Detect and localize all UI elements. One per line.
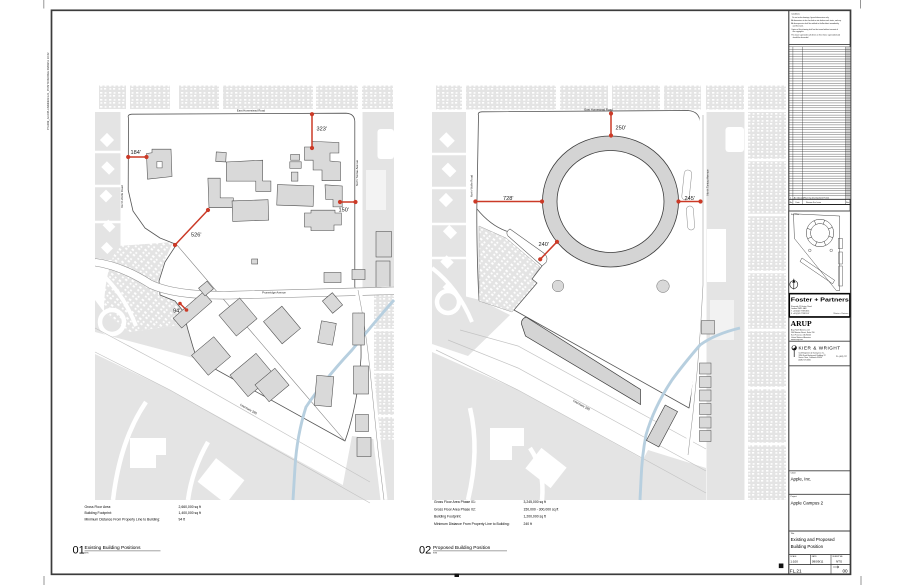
- svg-text:00: 00: [843, 569, 849, 574]
- svg-text:SCALE: SCALE: [790, 555, 797, 558]
- svg-text:Proposed Building Position: Proposed Building Position: [433, 545, 491, 551]
- svg-text:250': 250': [616, 126, 626, 132]
- svg-text:No.: No.: [790, 202, 793, 204]
- svg-text:North Tantau Avenue: North Tantau Avenue: [355, 160, 359, 186]
- svg-text:Client: Client: [791, 472, 797, 475]
- svg-text:P:\1099_AC2\PLANNING\FL21_POSI: P:\1099_AC2\PLANNING\FL21_POSITION.DWG 0…: [46, 52, 50, 130]
- svg-text:the copyrights.: the copyrights.: [793, 30, 805, 33]
- svg-text:should be discarded.: should be discarded.: [793, 36, 810, 39]
- svg-text:NTS: NTS: [433, 552, 438, 554]
- svg-text:www.arup.com: www.arup.com: [791, 339, 803, 341]
- svg-text:Do not scale drawings, figured: Do not scale drawings, figured dimension…: [792, 16, 829, 19]
- svg-text:North Wolfe Road: North Wolfe Road: [120, 185, 124, 208]
- svg-text:240': 240': [539, 242, 549, 248]
- svg-text:184': 184': [131, 150, 141, 156]
- svg-text:East Homestead Road: East Homestead Road: [237, 108, 266, 112]
- svg-text:245': 245': [685, 196, 695, 202]
- svg-text:Conditions: Conditions: [791, 13, 800, 16]
- svg-text:East Homestead Road: East Homestead Road: [584, 108, 613, 112]
- svg-text:Minimum Distance From Property: Minimum Distance From Property Line to B…: [85, 518, 161, 522]
- svg-text:2,660,000 sq ft: 2,660,000 sq ft: [179, 505, 201, 509]
- svg-text:Project: Project: [791, 495, 798, 498]
- svg-text:3,245,000 sq ft: 3,245,000 sq ft: [524, 500, 546, 504]
- svg-text:Title: Title: [791, 532, 796, 535]
- svg-text:Gross Floor Area Phase 02:: Gross Floor Area Phase 02:: [434, 507, 476, 511]
- svg-text:Building Footprint:: Building Footprint:: [85, 511, 112, 515]
- svg-text:Pruneridge Avenue: Pruneridge Avenue: [262, 290, 286, 294]
- svg-text:526': 526': [191, 233, 201, 239]
- svg-text:North Tantau Avenue: North Tantau Avenue: [706, 169, 710, 195]
- svg-text:Rev: Rev: [846, 202, 849, 204]
- svg-text:Reason For Issue: Reason For Issue: [806, 201, 821, 204]
- svg-text:Gross Floor Area Phase 01:: Gross Floor Area Phase 01:: [434, 500, 476, 504]
- svg-text:F +44 (0)20 7738 1107: F +44 (0)20 7738 1107: [791, 313, 809, 315]
- svg-text:94': 94': [173, 309, 180, 315]
- svg-text:323': 323': [317, 127, 327, 133]
- svg-text:150': 150': [339, 208, 349, 214]
- svg-text:09/09/11: 09/09/11: [812, 559, 824, 563]
- svg-text:94 ft: 94 ft: [179, 518, 186, 522]
- svg-text:Minimum Distance From Property: Minimum Distance From Property Line to B…: [434, 522, 510, 526]
- svg-text:1:100: 1:100: [790, 559, 798, 563]
- svg-text:728': 728': [503, 196, 513, 202]
- svg-text:ARUP: ARUP: [791, 319, 812, 328]
- svg-text:Building Footprint:: Building Footprint:: [434, 515, 461, 519]
- svg-text:Apple, Inc.: Apple, Inc.: [791, 476, 812, 481]
- svg-text:Planning Development Permit: Planning Development Permit: [804, 196, 829, 199]
- svg-text:Interstate 280: Interstate 280: [572, 399, 591, 412]
- svg-text:NTS: NTS: [836, 559, 842, 563]
- svg-text:Date: Date: [796, 201, 800, 204]
- svg-text:1,400,000 sq ft: 1,400,000 sq ft: [179, 511, 201, 515]
- svg-text:DATE: DATE: [812, 555, 818, 558]
- svg-text:02: 02: [419, 545, 431, 557]
- svg-text:(408) 727-6665: (408) 727-6665: [799, 360, 811, 362]
- svg-text:FL.21: FL.21: [790, 569, 802, 574]
- svg-text:NTS: NTS: [85, 552, 90, 554]
- svg-text:01: 01: [73, 545, 85, 557]
- svg-text:and this work.: and this work.: [793, 24, 804, 27]
- svg-text:Existing and Proposed: Existing and Proposed: [791, 537, 835, 542]
- svg-text:KIER & WRIGHT: KIER & WRIGHT: [799, 346, 841, 351]
- svg-text:Building Position: Building Position: [791, 544, 824, 549]
- svg-text:1: 1: [790, 197, 791, 199]
- svg-text:240 ft: 240 ft: [524, 522, 533, 526]
- svg-text:As indicated: As indicated: [794, 196, 804, 199]
- svg-text:Existing Building Positions: Existing Building Positions: [85, 545, 142, 551]
- svg-text:Apple Campus 2: Apple Campus 2: [791, 501, 824, 506]
- svg-text:©Foster + Partners: ©Foster + Partners: [833, 312, 848, 315]
- svg-text:Gross Floor Area:: Gross Floor Area:: [85, 505, 112, 509]
- svg-text:Ph. (408) 727: Ph. (408) 727: [836, 356, 847, 358]
- svg-text:North Wolfe Road: North Wolfe Road: [469, 174, 473, 197]
- svg-text:150,000 - 300,000 sq ft: 150,000 - 300,000 sq ft: [524, 507, 559, 511]
- svg-text:Foster + Partners: Foster + Partners: [791, 298, 849, 304]
- svg-text:All dimensions to be checked o: All dimensions to be checked on site bef…: [791, 19, 841, 22]
- svg-text:1,200,000 sq ft: 1,200,000 sq ft: [524, 515, 546, 519]
- svg-text:SUBMITTAL: SUBMITTAL: [832, 555, 842, 558]
